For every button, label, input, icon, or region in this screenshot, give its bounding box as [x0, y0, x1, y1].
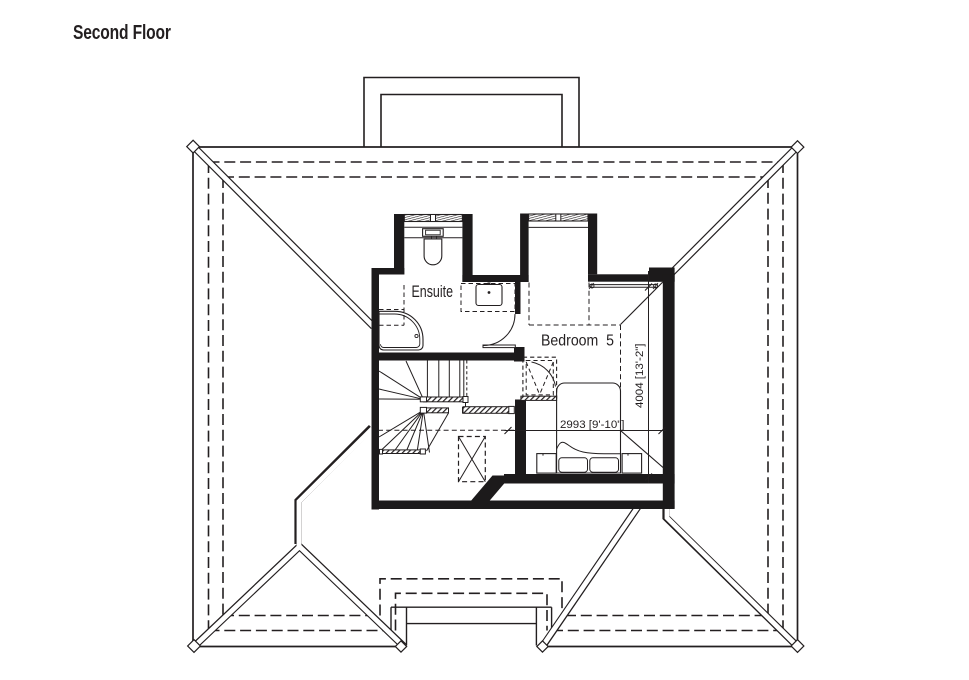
svg-text:2993 [9'-10"]: 2993 [9'-10"]: [560, 419, 625, 431]
svg-text:Bedroom 5: Bedroom 5: [541, 333, 614, 350]
svg-text:Ensuite: Ensuite: [412, 283, 454, 301]
svg-text:4004 [13'-2"]: 4004 [13'-2"]: [634, 344, 646, 409]
